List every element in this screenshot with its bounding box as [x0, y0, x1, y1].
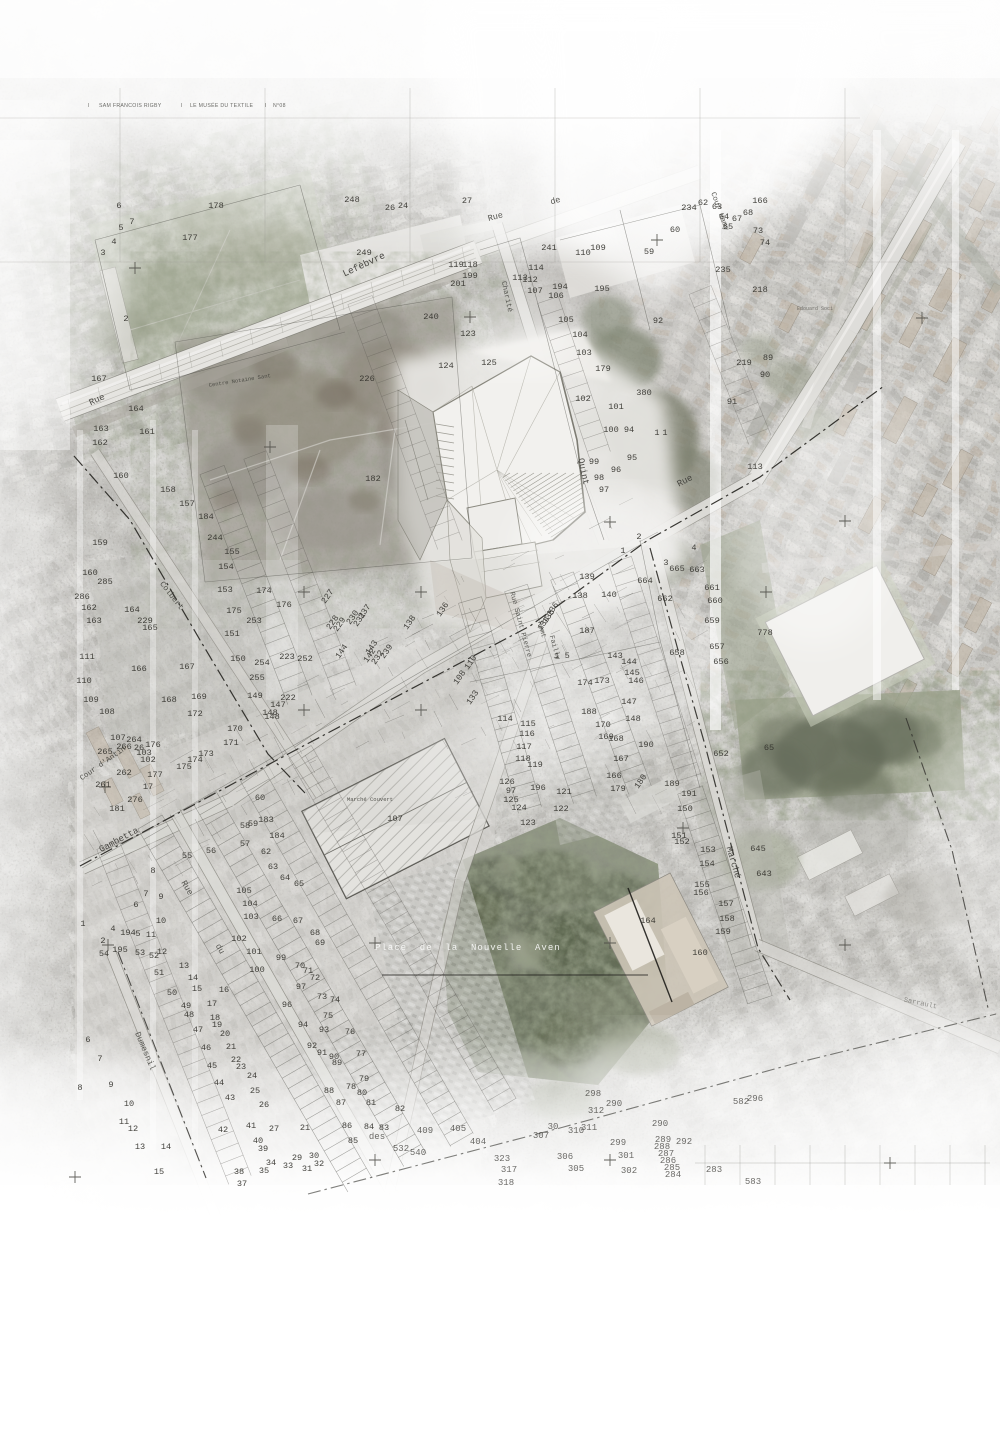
svg-text:95: 95: [627, 453, 637, 463]
svg-text:2: 2: [123, 314, 128, 324]
svg-text:306: 306: [557, 1152, 573, 1162]
svg-text:248: 248: [344, 195, 359, 205]
svg-text:323: 323: [494, 1154, 510, 1164]
svg-text:17: 17: [207, 999, 217, 1009]
svg-text:89: 89: [763, 353, 773, 363]
svg-text:150: 150: [230, 654, 245, 664]
svg-text:164: 164: [128, 404, 143, 414]
svg-text:73: 73: [317, 992, 327, 1002]
svg-text:153: 153: [700, 845, 715, 855]
svg-text:3: 3: [663, 558, 668, 568]
svg-text:663: 663: [689, 565, 704, 575]
svg-text:645: 645: [750, 844, 765, 854]
svg-text:N°08: N°08: [273, 103, 286, 109]
svg-text:175: 175: [226, 606, 241, 616]
svg-text:27: 27: [462, 196, 472, 206]
svg-text:223: 223: [279, 652, 294, 662]
svg-text:78: 78: [346, 1082, 356, 1092]
svg-text:124: 124: [511, 803, 526, 813]
svg-text:72: 72: [310, 973, 320, 983]
svg-text:109: 109: [590, 243, 605, 253]
svg-text:44: 44: [214, 1078, 224, 1088]
svg-text:163: 163: [93, 424, 108, 434]
svg-text:Place de la Nouvelle Aven: Place de la Nouvelle Aven: [375, 943, 561, 953]
svg-text:79: 79: [359, 1074, 369, 1084]
svg-text:166: 166: [752, 196, 767, 206]
svg-text:302: 302: [621, 1166, 637, 1176]
svg-text:73: 73: [753, 226, 763, 236]
svg-text:311: 311: [581, 1123, 597, 1133]
svg-text:167: 167: [613, 754, 628, 764]
svg-text:177: 177: [147, 770, 162, 780]
svg-text:99: 99: [589, 457, 599, 467]
svg-text:296: 296: [747, 1094, 763, 1104]
svg-text:190: 190: [638, 740, 653, 750]
svg-text:76: 76: [345, 1027, 355, 1037]
svg-text:66: 66: [272, 914, 282, 924]
svg-text:156: 156: [693, 888, 708, 898]
svg-text:158: 158: [160, 485, 175, 495]
svg-text:4: 4: [691, 543, 696, 553]
svg-text:100: 100: [249, 965, 264, 975]
svg-text:103: 103: [243, 912, 258, 922]
svg-text:283: 283: [706, 1165, 722, 1175]
svg-text:194: 194: [552, 282, 567, 292]
svg-text:658: 658: [669, 648, 684, 658]
svg-text:189: 189: [664, 779, 679, 789]
svg-text:125: 125: [481, 358, 496, 368]
svg-text:118: 118: [462, 260, 477, 270]
svg-text:241: 241: [541, 243, 556, 253]
svg-text:147: 147: [621, 697, 636, 707]
svg-text:105: 105: [558, 315, 573, 325]
svg-text:47: 47: [193, 1025, 203, 1035]
svg-text:111: 111: [79, 652, 94, 662]
svg-text:182: 182: [365, 474, 380, 484]
svg-text:405: 405: [450, 1124, 466, 1134]
svg-text:89: 89: [332, 1058, 342, 1068]
svg-text:175: 175: [176, 762, 191, 772]
svg-text:151: 151: [224, 629, 239, 639]
svg-text:661: 661: [704, 583, 719, 593]
svg-text:114: 114: [528, 263, 543, 273]
svg-text:159: 159: [715, 927, 730, 937]
svg-text:160: 160: [113, 471, 128, 481]
svg-text:261: 261: [95, 780, 110, 790]
svg-text:181: 181: [109, 804, 124, 814]
svg-text:4: 4: [111, 237, 116, 247]
svg-text:652: 652: [713, 749, 728, 759]
svg-text:148: 148: [625, 714, 640, 724]
svg-text:90: 90: [760, 370, 770, 380]
svg-text:299: 299: [610, 1138, 626, 1148]
svg-text:50: 50: [167, 988, 177, 998]
svg-text:13: 13: [179, 961, 189, 971]
svg-text:103: 103: [576, 348, 591, 358]
svg-text:140: 140: [601, 590, 616, 600]
svg-text:51: 51: [154, 968, 164, 978]
svg-text:171: 171: [223, 738, 238, 748]
svg-text:301: 301: [618, 1151, 634, 1161]
svg-text:14: 14: [188, 973, 198, 983]
svg-text:164: 164: [640, 916, 655, 926]
svg-text:119: 119: [527, 760, 542, 770]
svg-text:13: 13: [135, 1142, 145, 1152]
svg-text:659: 659: [704, 616, 719, 626]
svg-text:235: 235: [715, 265, 730, 275]
svg-text:262: 262: [116, 768, 131, 778]
svg-text:86: 86: [342, 1121, 352, 1131]
svg-text:48: 48: [184, 1010, 194, 1020]
svg-text:285: 285: [97, 577, 112, 587]
svg-text:57: 57: [240, 839, 250, 849]
svg-text:123: 123: [460, 329, 475, 339]
svg-text:4: 4: [110, 924, 115, 934]
svg-text:12: 12: [157, 947, 167, 957]
svg-text:62: 62: [261, 847, 271, 857]
svg-text:312: 312: [588, 1106, 604, 1116]
svg-text:195: 195: [594, 284, 609, 294]
svg-text:20: 20: [220, 1029, 230, 1039]
svg-text:162: 162: [81, 603, 96, 613]
svg-text:154: 154: [218, 562, 233, 572]
svg-text:160: 160: [82, 568, 97, 578]
svg-text:41: 41: [246, 1121, 256, 1131]
svg-text:284: 284: [665, 1170, 681, 1180]
svg-text:8: 8: [77, 1083, 82, 1093]
svg-text:98: 98: [594, 473, 604, 483]
svg-text:SAM FRANCOIS RIGBY: SAM FRANCOIS RIGBY: [99, 103, 162, 109]
svg-text:174: 174: [577, 678, 592, 688]
svg-text:177: 177: [182, 233, 197, 243]
svg-text:68: 68: [743, 208, 753, 218]
svg-text:I: I: [181, 103, 183, 109]
svg-text:42: 42: [218, 1125, 228, 1135]
svg-text:540: 540: [410, 1148, 426, 1158]
svg-text:74: 74: [760, 238, 770, 248]
svg-text:2: 2: [100, 936, 105, 946]
svg-text:91: 91: [317, 1048, 327, 1058]
svg-text:117: 117: [516, 742, 531, 752]
svg-text:226: 226: [359, 374, 374, 384]
svg-text:165: 165: [142, 623, 157, 633]
svg-text:187: 187: [579, 626, 594, 636]
svg-text:122: 122: [553, 804, 568, 814]
svg-text:276: 276: [127, 795, 142, 805]
svg-text:7: 7: [97, 1054, 102, 1064]
svg-text:62: 62: [698, 198, 708, 208]
svg-text:1: 1: [620, 546, 625, 556]
svg-text:85: 85: [348, 1136, 358, 1146]
svg-text:657: 657: [709, 642, 724, 652]
svg-text:1: 1: [80, 919, 85, 929]
svg-text:148: 148: [264, 712, 279, 722]
svg-text:409: 409: [417, 1126, 433, 1136]
svg-text:219: 219: [736, 358, 751, 368]
svg-text:93: 93: [319, 1025, 329, 1035]
svg-text:144: 144: [621, 657, 636, 667]
svg-text:11: 11: [146, 930, 156, 940]
svg-text:45: 45: [207, 1061, 217, 1071]
svg-text:101: 101: [608, 402, 623, 412]
svg-text:307: 307: [533, 1131, 549, 1141]
svg-text:27: 27: [269, 1124, 279, 1134]
svg-text:67: 67: [293, 916, 303, 926]
svg-text:35: 35: [259, 1166, 269, 1176]
svg-text:43: 43: [225, 1093, 235, 1103]
svg-text:I: I: [265, 103, 267, 109]
svg-text:124: 124: [438, 361, 453, 371]
svg-text:194: 194: [120, 928, 135, 938]
svg-text:218: 218: [752, 285, 767, 295]
svg-text:179: 179: [610, 784, 625, 794]
svg-text:7: 7: [129, 217, 134, 227]
svg-text:87: 87: [336, 1098, 346, 1108]
svg-text:14: 14: [161, 1142, 171, 1152]
svg-text:32: 32: [314, 1159, 324, 1169]
svg-text:77: 77: [356, 1049, 366, 1059]
svg-text:298: 298: [585, 1089, 601, 1099]
svg-text:290: 290: [606, 1099, 622, 1109]
svg-text:188: 188: [581, 707, 596, 717]
svg-text:157: 157: [718, 899, 733, 909]
svg-text:24: 24: [247, 1071, 257, 1081]
svg-text:5: 5: [135, 929, 140, 939]
svg-text:21: 21: [226, 1042, 236, 1052]
svg-text:88: 88: [324, 1086, 334, 1096]
svg-text:59: 59: [248, 819, 258, 829]
svg-text:163: 163: [86, 616, 101, 626]
svg-text:170: 170: [595, 720, 610, 730]
svg-text:169: 169: [191, 692, 206, 702]
svg-text:6: 6: [133, 900, 138, 910]
svg-text:108: 108: [99, 707, 114, 717]
svg-text:81: 81: [366, 1098, 376, 1108]
svg-text:64: 64: [280, 873, 290, 883]
svg-text:174: 174: [256, 586, 271, 596]
svg-text:105: 105: [236, 886, 251, 896]
svg-text:91: 91: [727, 397, 737, 407]
svg-text:84: 84: [364, 1122, 374, 1132]
svg-text:254: 254: [254, 658, 269, 668]
svg-text:159: 159: [92, 538, 107, 548]
svg-text:161: 161: [139, 427, 154, 437]
svg-text:2: 2: [636, 532, 641, 542]
svg-text:6: 6: [116, 201, 121, 211]
svg-text:15: 15: [154, 1167, 164, 1177]
svg-text:Marché Couvert: Marché Couvert: [347, 796, 393, 803]
svg-text:102: 102: [575, 394, 590, 404]
svg-text:656: 656: [713, 657, 728, 667]
svg-text:33: 33: [283, 1161, 293, 1171]
svg-text:110: 110: [76, 676, 91, 686]
svg-text:99: 99: [276, 953, 286, 963]
svg-text:92: 92: [307, 1041, 317, 1051]
svg-text:662: 662: [657, 594, 672, 604]
svg-text:96: 96: [611, 465, 621, 475]
svg-text:170: 170: [227, 724, 242, 734]
svg-text:292: 292: [676, 1137, 692, 1147]
svg-text:101: 101: [246, 947, 261, 957]
svg-text:112: 112: [522, 275, 537, 285]
svg-text:149: 149: [247, 691, 262, 701]
svg-text:3: 3: [100, 248, 105, 258]
svg-text:65: 65: [294, 879, 304, 889]
svg-text:191: 191: [681, 789, 696, 799]
svg-text:253: 253: [246, 616, 261, 626]
svg-text:123: 123: [520, 818, 535, 828]
svg-text:157: 157: [179, 499, 194, 509]
svg-text:168: 168: [161, 695, 176, 705]
svg-text:152: 152: [674, 837, 689, 847]
svg-text:107: 107: [527, 286, 542, 296]
svg-text:183: 183: [258, 815, 273, 825]
svg-text:38: 38: [234, 1167, 244, 1177]
svg-text:158: 158: [719, 914, 734, 924]
svg-text:69: 69: [315, 938, 325, 948]
svg-text:102: 102: [231, 934, 246, 944]
svg-text:660: 660: [707, 596, 722, 606]
svg-text:109: 109: [83, 695, 98, 705]
svg-text:65: 65: [764, 743, 774, 753]
svg-text:Edouard Soci: Edouard Soci: [797, 306, 833, 312]
svg-text:178: 178: [208, 201, 223, 211]
svg-text:196: 196: [530, 783, 545, 793]
svg-text:121: 121: [556, 787, 571, 797]
svg-text:164: 164: [124, 605, 139, 615]
svg-text:166: 166: [606, 771, 621, 781]
svg-text:162: 162: [92, 438, 107, 448]
svg-text:23: 23: [236, 1062, 246, 1072]
svg-text:234: 234: [681, 203, 696, 213]
svg-text:15: 15: [192, 984, 202, 994]
svg-text:97: 97: [599, 485, 609, 495]
svg-text:150: 150: [677, 804, 692, 814]
svg-text:113: 113: [747, 462, 762, 472]
svg-text:160: 160: [692, 948, 707, 958]
svg-text:318: 318: [498, 1178, 514, 1188]
svg-text:116: 116: [519, 729, 534, 739]
svg-text:583: 583: [745, 1177, 761, 1187]
svg-text:404: 404: [470, 1137, 486, 1147]
svg-text:139: 139: [579, 572, 594, 582]
svg-text:5: 5: [118, 223, 123, 233]
svg-text:184: 184: [269, 831, 284, 841]
svg-text:des: des: [369, 1132, 385, 1142]
svg-text:102: 102: [140, 755, 155, 765]
svg-text:I: I: [88, 103, 90, 109]
svg-text:9: 9: [108, 1080, 113, 1090]
svg-text:63: 63: [268, 862, 278, 872]
svg-text:173: 173: [594, 676, 609, 686]
svg-text:60: 60: [255, 793, 265, 803]
svg-text:10: 10: [156, 916, 166, 926]
svg-text:97: 97: [296, 982, 306, 992]
svg-text:10: 10: [124, 1099, 134, 1109]
svg-text:53: 53: [135, 948, 145, 958]
svg-text:59: 59: [644, 247, 654, 257]
svg-text:179: 179: [595, 364, 610, 374]
svg-text:25: 25: [250, 1086, 260, 1096]
svg-text:665: 665: [669, 564, 684, 574]
svg-text:380: 380: [636, 388, 651, 398]
svg-text:26: 26: [385, 203, 395, 213]
svg-text:LE MUSÉE DU TEXTILE: LE MUSÉE DU TEXTILE: [190, 102, 253, 109]
svg-text:7: 7: [143, 889, 148, 899]
svg-text:106: 106: [548, 291, 563, 301]
svg-text:94: 94: [298, 1020, 308, 1030]
svg-text:155: 155: [224, 547, 239, 557]
svg-text:82: 82: [395, 1104, 405, 1114]
svg-text:244: 244: [207, 533, 222, 543]
svg-text:104: 104: [572, 330, 587, 340]
svg-text:55: 55: [182, 851, 192, 861]
svg-text:176: 176: [276, 600, 291, 610]
svg-text:255: 255: [249, 673, 264, 683]
svg-text:146: 146: [628, 676, 643, 686]
svg-text:68: 68: [310, 928, 320, 938]
svg-text:115: 115: [520, 719, 535, 729]
svg-text:532: 532: [393, 1144, 409, 1154]
svg-text:1: 1: [662, 428, 667, 438]
svg-text:167: 167: [179, 662, 194, 672]
svg-text:46: 46: [201, 1043, 211, 1053]
svg-text:1: 1: [654, 428, 659, 438]
svg-text:31: 31: [302, 1164, 312, 1174]
svg-text:167: 167: [91, 374, 106, 384]
svg-text:30: 30: [548, 1122, 559, 1132]
svg-text:24: 24: [398, 201, 408, 211]
svg-text:11: 11: [119, 1117, 129, 1127]
svg-text:643: 643: [756, 869, 771, 879]
svg-text:664: 664: [637, 576, 652, 586]
svg-text:60: 60: [670, 225, 680, 235]
svg-text:107: 107: [387, 814, 402, 824]
svg-text:778: 778: [757, 628, 772, 638]
svg-text:37: 37: [237, 1179, 247, 1189]
svg-text:110: 110: [575, 248, 590, 258]
svg-text:67: 67: [732, 214, 742, 224]
svg-text:17: 17: [143, 782, 153, 792]
svg-text:94: 94: [624, 425, 634, 435]
svg-text:154: 154: [699, 859, 714, 869]
svg-text:9: 9: [158, 892, 163, 902]
svg-text:286: 286: [74, 592, 89, 602]
svg-text:305: 305: [568, 1164, 584, 1174]
svg-text:138: 138: [572, 591, 587, 601]
svg-text:16: 16: [219, 985, 229, 995]
svg-text:8: 8: [150, 866, 155, 876]
svg-text:80: 80: [357, 1088, 367, 1098]
svg-text:290: 290: [652, 1119, 668, 1129]
svg-text:96: 96: [282, 1000, 292, 1010]
svg-text:195: 195: [112, 945, 127, 955]
svg-text:21: 21: [300, 1123, 310, 1133]
svg-text:39: 39: [258, 1144, 268, 1154]
svg-text:26: 26: [259, 1100, 269, 1110]
svg-text:153: 153: [217, 585, 232, 595]
svg-text:114: 114: [497, 714, 512, 724]
svg-text:166: 166: [131, 664, 146, 674]
svg-text:240: 240: [423, 312, 438, 322]
svg-text:56: 56: [206, 846, 216, 856]
svg-text:317: 317: [501, 1165, 517, 1175]
svg-text:172: 172: [187, 709, 202, 719]
svg-text:74: 74: [330, 995, 340, 1005]
svg-text:252: 252: [297, 654, 312, 664]
svg-text:54: 54: [99, 949, 109, 959]
svg-text:201: 201: [450, 279, 465, 289]
